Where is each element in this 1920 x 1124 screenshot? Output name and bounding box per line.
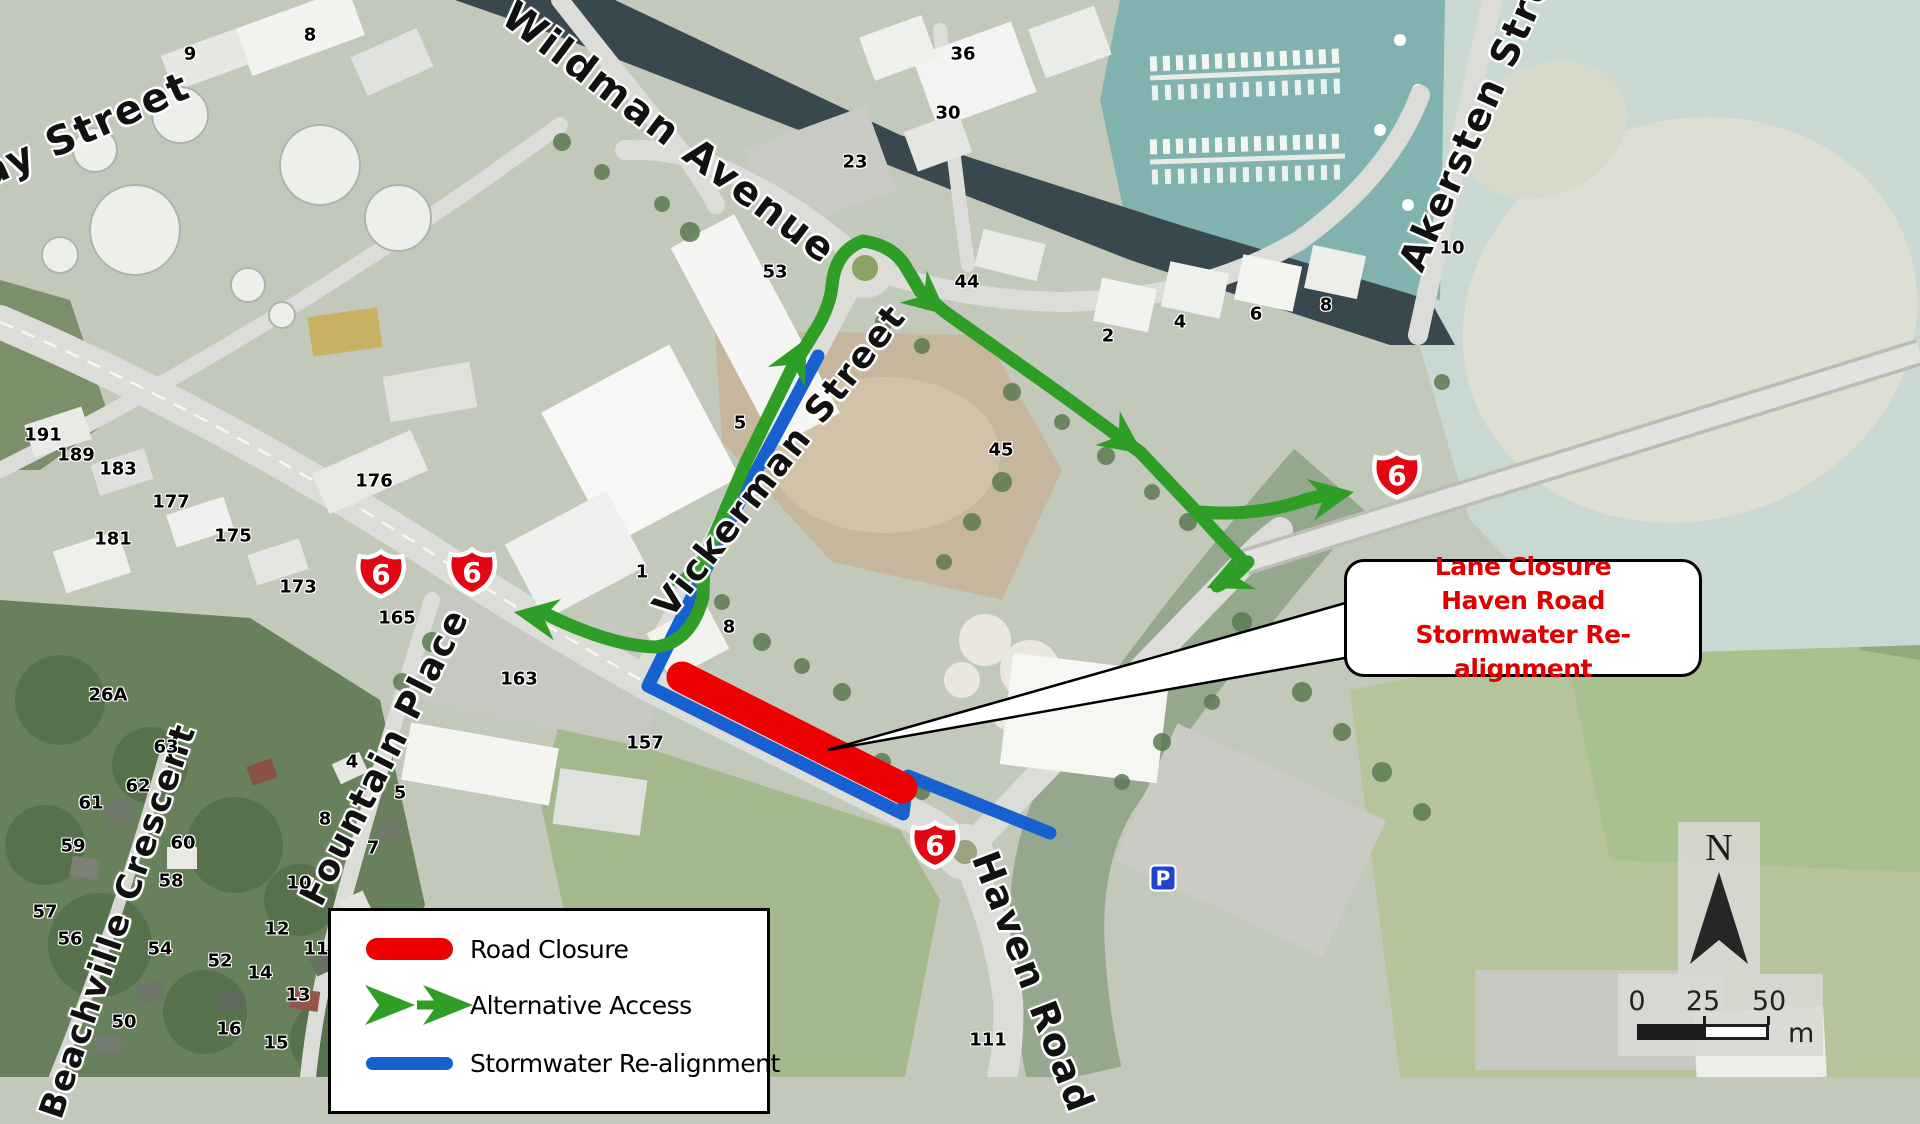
road-closure-line: [682, 677, 902, 788]
svg-text:6: 6: [925, 829, 944, 862]
sh6-shield-icon: 6: [449, 550, 494, 595]
scale-tick-25: 25: [1686, 986, 1720, 1017]
alternative-access-line: [1198, 493, 1334, 513]
scale-segment-filled: [1637, 1024, 1703, 1040]
legend-label: Road Closure: [470, 935, 628, 964]
callout-line-1: Lane Closure: [1347, 550, 1699, 584]
alternative-access-line: [550, 241, 1242, 647]
callout-line-3: Stormwater Re-alignment: [1347, 618, 1699, 686]
legend-label: Alternative Access: [470, 991, 692, 1020]
sh6-shield-icon: 6: [1374, 453, 1419, 498]
sh6-shield-icon: 6: [912, 823, 957, 868]
svg-text:6: 6: [371, 558, 390, 591]
legend-row-stormwater: Stormwater Re-alignment: [365, 1041, 780, 1085]
north-arrow: N: [1678, 822, 1760, 974]
stormwater-symbol: [365, 1048, 470, 1078]
scale-tick-0: 0: [1628, 986, 1645, 1017]
scale-tick-50: 50: [1752, 986, 1786, 1017]
callout-line-2: Haven Road: [1347, 584, 1699, 618]
callout-pointer: [828, 600, 1356, 750]
scale-segment-open: [1703, 1024, 1769, 1040]
legend-row-road-closure: Road Closure: [365, 927, 628, 971]
svg-text:6: 6: [1387, 459, 1406, 492]
legend-row-alternative-access: Alternative Access: [365, 983, 692, 1027]
alternative-access-symbol: [365, 983, 470, 1027]
scale-bar: 0 25 50 m: [1618, 974, 1823, 1056]
scale-tick-mark: [1767, 1016, 1770, 1025]
sh6-shield-icon: 6: [358, 552, 403, 597]
north-letter: N: [1678, 826, 1760, 870]
parking-icon: P: [1150, 865, 1177, 892]
map-overlay: 6666: [0, 0, 1920, 1077]
svg-text:6: 6: [462, 556, 481, 589]
north-arrow-icon: [1690, 872, 1748, 964]
road-closure-map: { "map": { "colors": { "closure": "#ee00…: [0, 0, 1920, 1077]
alternative-access-route: [510, 241, 1357, 647]
legend-label: Stormwater Re-alignment: [470, 1049, 780, 1078]
scale-tick-mark: [1703, 1016, 1706, 1025]
lane-closure-callout: Lane Closure Haven Road Stormwater Re-al…: [1344, 559, 1702, 677]
road-closure-symbol: [365, 934, 470, 964]
legend: Road Closure Alternative Access Stormwat…: [328, 908, 770, 1114]
scale-unit: m: [1788, 1018, 1814, 1049]
route-lines: [510, 241, 1357, 833]
